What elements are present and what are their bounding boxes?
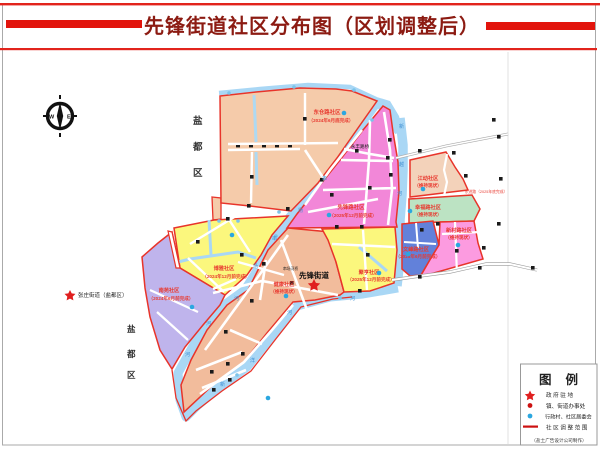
svg-text:都: 都	[126, 349, 136, 359]
svg-text:洋: 洋	[250, 357, 255, 364]
svg-text:串: 串	[322, 176, 327, 182]
svg-text:（维持现状）: （维持现状）	[270, 288, 298, 295]
svg-text:河: 河	[350, 295, 355, 302]
svg-text:串场河桥: 串场河桥	[283, 266, 298, 271]
svg-text:聚亨社区: 聚亨社区	[358, 268, 381, 276]
svg-text:（2025年12月前完成）: （2025年12月前完成）	[347, 276, 395, 283]
svg-text:盐: 盐	[193, 115, 203, 127]
svg-text:张庄街道（盐都区）: 张庄街道（盐都区）	[78, 291, 128, 299]
svg-text:（盐土广告设计公司制作）: （盐土广告设计公司制作）	[531, 437, 586, 444]
svg-text:先锋街道: 先锋街道	[299, 270, 329, 280]
svg-text:E: E	[67, 115, 71, 121]
svg-text:盐: 盐	[127, 324, 136, 334]
svg-text:幸福路社区: 幸福路社区	[415, 203, 442, 211]
svg-text:（2025年12月前完成）: （2025年12月前完成）	[329, 212, 377, 219]
svg-text:越: 越	[399, 161, 404, 168]
svg-text:区: 区	[127, 370, 136, 380]
svg-text:政 府 驻 地: 政 府 驻 地	[546, 391, 573, 399]
svg-text:河: 河	[234, 295, 239, 302]
svg-text:（2024年6月底完成）: （2024年6月底完成）	[309, 117, 354, 124]
svg-text:先锋街道社区分布图（区划调整后）: 先锋街道社区分布图（区划调整后）	[144, 14, 480, 38]
svg-text:场: 场	[253, 263, 258, 270]
svg-text:博雅社区: 博雅社区	[214, 264, 236, 272]
svg-text:东进路（2025年底完成）: 东进路（2025年底完成）	[465, 189, 508, 194]
svg-text:（维持现状）: （维持现状）	[414, 211, 442, 218]
svg-text:健康社区: 健康社区	[274, 280, 296, 288]
svg-text:区: 区	[193, 168, 203, 179]
svg-text:永丰路桥: 永丰路桥	[351, 143, 370, 150]
svg-text:新村路社区: 新村路社区	[446, 226, 473, 234]
svg-text:（维持现状）: （维持现状）	[445, 234, 473, 241]
svg-text:行政村、社区居委会: 行政村、社区居委会	[545, 413, 592, 421]
svg-text:（2025年6月前完成）: （2025年6月前完成）	[396, 253, 441, 260]
svg-text:南苑社区: 南苑社区	[159, 286, 181, 294]
svg-text:镇、街道办事处: 镇、街道办事处	[546, 402, 586, 410]
svg-text:图例: 图例	[539, 372, 592, 387]
svg-text:（2024年12月前完成）: （2024年12月前完成）	[202, 273, 250, 280]
svg-text:东仓路社区: 东仓路社区	[314, 108, 342, 116]
svg-text:场: 场	[298, 207, 303, 214]
svg-text:新: 新	[220, 381, 225, 388]
svg-text:河: 河	[287, 309, 292, 316]
svg-text:（2024年6月前完成）: （2024年6月前完成）	[149, 295, 194, 302]
svg-text:河: 河	[206, 320, 211, 327]
svg-text:都: 都	[192, 141, 203, 153]
svg-text:社 区 调 整 范 围: 社 区 调 整 范 围	[546, 424, 588, 432]
svg-text:河: 河	[185, 351, 190, 358]
svg-text:先锋路社区: 先锋路社区	[338, 203, 366, 211]
svg-text:新: 新	[399, 123, 404, 130]
svg-text:河: 河	[397, 190, 402, 197]
svg-text:江动社区: 江动社区	[418, 174, 440, 182]
svg-text:串: 串	[272, 236, 277, 242]
svg-text:文峰路社区: 文峰路社区	[403, 245, 430, 253]
svg-text:（维持现状）: （维持现状）	[414, 182, 442, 189]
svg-text:W: W	[49, 115, 55, 121]
